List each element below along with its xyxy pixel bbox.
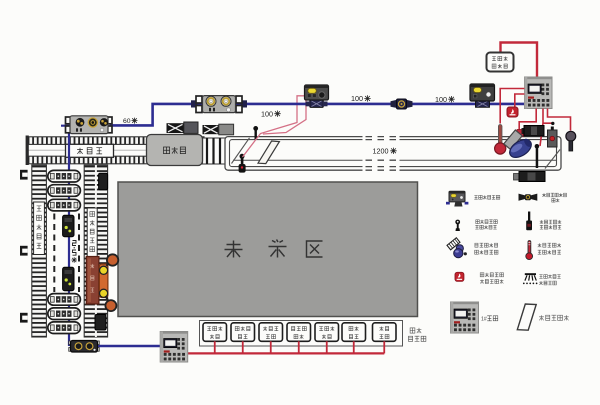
svg-text:1200: 1200 — [373, 147, 389, 156]
svg-text:100: 100 — [435, 95, 447, 104]
svg-text:100: 100 — [351, 94, 363, 103]
svg-text:60: 60 — [123, 118, 131, 125]
svg-text:100: 100 — [261, 109, 273, 118]
svg-text:1#: 1# — [481, 317, 487, 323]
